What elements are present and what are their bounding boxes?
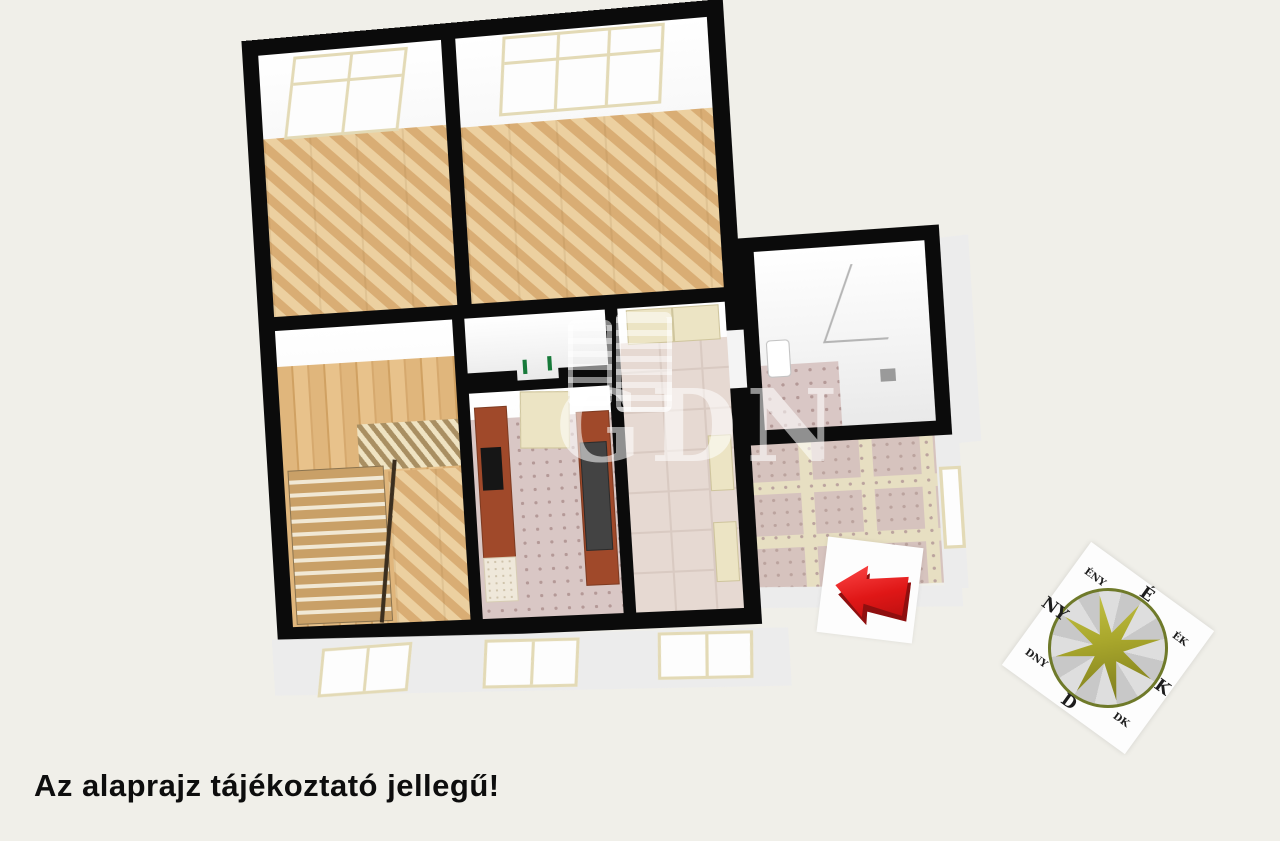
window-bar bbox=[530, 642, 535, 685]
compass-label-southeast: DK bbox=[1111, 711, 1132, 730]
main-block-walls bbox=[241, 0, 762, 644]
window-bar bbox=[705, 634, 709, 675]
staircase bbox=[287, 466, 393, 625]
niche-wall bbox=[558, 365, 609, 378]
hallway-side-door-1 bbox=[708, 434, 735, 491]
disclaimer-text: Az alaprajz tájékoztató jellegű! bbox=[34, 768, 500, 804]
orientation-arrow-card bbox=[817, 537, 924, 644]
facade-window-2 bbox=[482, 637, 579, 688]
cooktop bbox=[480, 447, 503, 491]
window-bar bbox=[553, 35, 559, 109]
stair-upper-slats bbox=[357, 418, 467, 470]
room-staircase bbox=[275, 319, 471, 627]
floorplan-page: GDN É ÉK K DK D DNY NY ÉNY Az alaprajz t… bbox=[0, 0, 1280, 841]
compass-label-northwest: ÉNY bbox=[1082, 566, 1108, 589]
room-top-left-window bbox=[284, 47, 408, 140]
room-top-left-parquet-floor bbox=[263, 125, 457, 317]
niche-green-post bbox=[547, 356, 552, 371]
window-bar bbox=[504, 48, 660, 64]
room-top-right-window bbox=[499, 23, 665, 117]
room-top-left bbox=[258, 40, 457, 317]
room-top-right-parquet-floor bbox=[461, 108, 724, 304]
window-bar bbox=[605, 30, 611, 105]
niche-wall bbox=[468, 370, 518, 383]
kitchen-counter-corner bbox=[483, 556, 519, 602]
kitchen-door bbox=[520, 391, 570, 448]
balcony-window bbox=[939, 466, 966, 549]
room-top-right bbox=[455, 17, 724, 304]
window-bar bbox=[341, 55, 353, 133]
window-bar bbox=[363, 648, 370, 691]
staircase-room-parquet-patch bbox=[388, 467, 470, 622]
hallway-side-door-2 bbox=[713, 521, 740, 582]
left-arrow-icon bbox=[832, 562, 910, 622]
compass-rose: É ÉK K DK D DNY NY ÉNY bbox=[1002, 542, 1214, 754]
kitchen bbox=[469, 385, 624, 619]
exterior-wall-face-bottom bbox=[272, 627, 792, 695]
toilet bbox=[766, 339, 792, 378]
compass-label-northeast: ÉK bbox=[1170, 630, 1190, 648]
shower-drain bbox=[880, 368, 896, 381]
niche-green-post bbox=[522, 360, 527, 375]
hallway-wardrobe-door-right bbox=[672, 304, 721, 342]
compass-label-southwest: DNY bbox=[1023, 647, 1050, 671]
bathroom bbox=[754, 240, 936, 430]
niche bbox=[464, 310, 609, 384]
facade-window-1 bbox=[317, 642, 412, 698]
bathroom-walls bbox=[738, 224, 952, 445]
shower-frame bbox=[823, 260, 916, 344]
hallway bbox=[617, 302, 744, 613]
hallway-wardrobe-door-left bbox=[626, 307, 674, 345]
facade-window-3 bbox=[658, 630, 754, 680]
